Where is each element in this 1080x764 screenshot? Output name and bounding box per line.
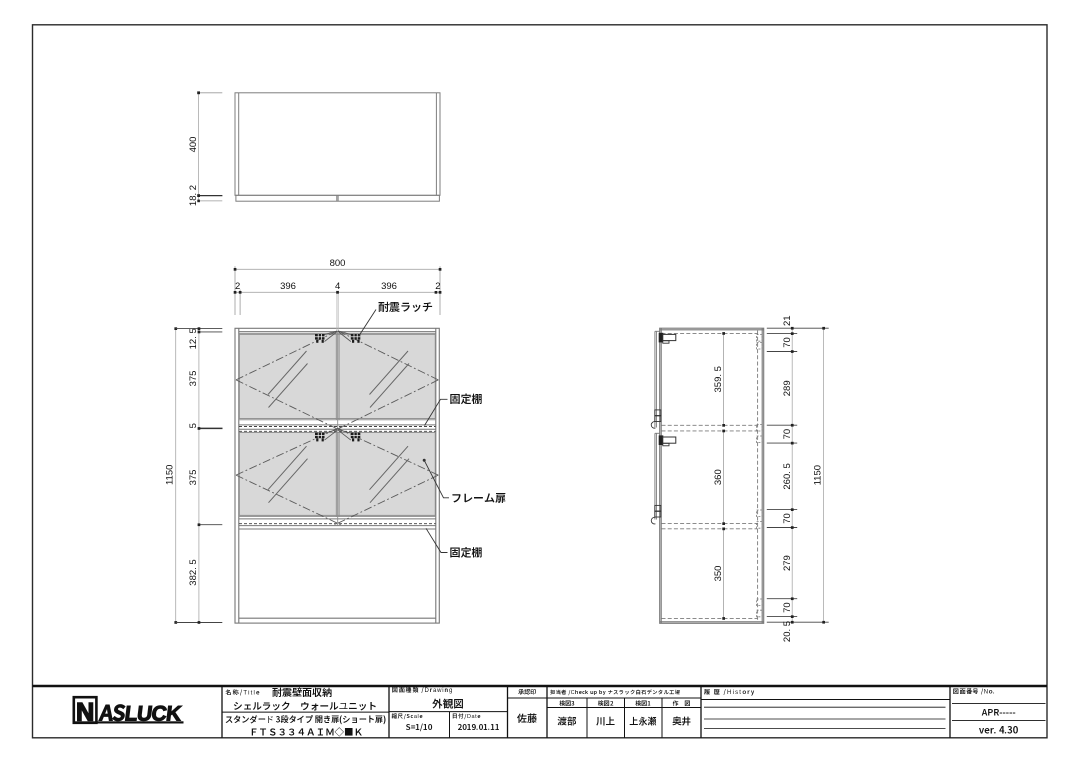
svg-text:800: 800 <box>330 258 346 269</box>
svg-text:70: 70 <box>782 602 793 613</box>
svg-text:外観図: 外観図 <box>431 696 464 711</box>
svg-text:耐震ラッチ: 耐震ラッチ <box>378 299 433 315</box>
svg-text:奥井: 奥井 <box>671 714 692 728</box>
svg-text:5: 5 <box>188 423 199 428</box>
svg-text:川上: 川上 <box>595 714 616 728</box>
svg-text:作 図: 作 図 <box>672 699 690 708</box>
svg-text:固定棚: 固定棚 <box>450 545 483 561</box>
svg-text:350: 350 <box>713 566 724 582</box>
svg-text:375: 375 <box>188 371 199 387</box>
svg-text:シェルラック ウォールユニット: シェルラック ウォールユニット <box>233 699 377 713</box>
svg-text:佐藤: 佐藤 <box>517 710 537 725</box>
svg-text:289: 289 <box>782 380 793 396</box>
svg-text:359. 5: 359. 5 <box>713 366 724 392</box>
svg-text:APR-----: APR----- <box>980 705 1015 718</box>
svg-text:21: 21 <box>782 315 793 326</box>
svg-text:20. 5: 20. 5 <box>782 621 793 642</box>
svg-text:70: 70 <box>782 513 793 524</box>
svg-text:2: 2 <box>435 281 440 292</box>
svg-text:ＦＴＳ３３４ＡＩＭ◇■Ｋ: ＦＴＳ３３４ＡＩＭ◇■Ｋ <box>249 724 363 738</box>
svg-text:375: 375 <box>188 470 199 486</box>
svg-text:2019.01.11: 2019.01.11 <box>457 722 499 733</box>
svg-text:承認印: 承認印 <box>517 687 536 696</box>
svg-text:396: 396 <box>381 281 397 292</box>
svg-text:70: 70 <box>782 337 793 348</box>
svg-text:ver. 4.30: ver. 4.30 <box>979 723 1019 737</box>
svg-text:1150: 1150 <box>812 465 823 485</box>
svg-text:1150: 1150 <box>164 465 175 485</box>
svg-text:396: 396 <box>280 281 296 292</box>
svg-text:S=1/10: S=1/10 <box>406 722 433 733</box>
svg-text:上永瀬: 上永瀬 <box>629 715 656 728</box>
svg-text:名称/Title: 名称/Title <box>226 687 261 696</box>
svg-text:耐震壁面収納: 耐震壁面収納 <box>272 684 332 699</box>
svg-text:検図3: 検図3 <box>559 699 574 708</box>
svg-text:70: 70 <box>782 429 793 440</box>
svg-text:4: 4 <box>335 281 340 292</box>
svg-text:担当者 /Check up by ナスラック白石デンタル工場: 担当者 /Check up by ナスラック白石デンタル工場 <box>550 689 681 696</box>
svg-text:360: 360 <box>713 469 724 485</box>
svg-text:279: 279 <box>782 555 793 571</box>
svg-text:渡部: 渡部 <box>556 714 577 728</box>
svg-text:縮尺/Scale: 縮尺/Scale <box>392 712 424 720</box>
svg-text:図面番号 /No.: 図面番号 /No. <box>953 686 995 695</box>
svg-text:260. 5: 260. 5 <box>782 463 793 489</box>
svg-text:固定棚: 固定棚 <box>450 391 483 407</box>
svg-text:履 歴 /History: 履 歴 /History <box>703 687 755 696</box>
svg-text:18. 2: 18. 2 <box>188 185 199 206</box>
svg-text:2: 2 <box>235 281 240 292</box>
svg-text:日付/Date: 日付/Date <box>452 712 481 720</box>
svg-text:図面種類 /Drawing: 図面種類 /Drawing <box>392 685 453 694</box>
svg-text:検図2: 検図2 <box>598 699 614 708</box>
svg-text:400: 400 <box>188 137 199 153</box>
svg-text:フレーム扉: フレーム扉 <box>451 490 506 506</box>
svg-text:382. 5: 382. 5 <box>188 559 199 585</box>
svg-text:検図1: 検図1 <box>635 699 650 708</box>
svg-text:12. 5: 12. 5 <box>188 328 199 349</box>
